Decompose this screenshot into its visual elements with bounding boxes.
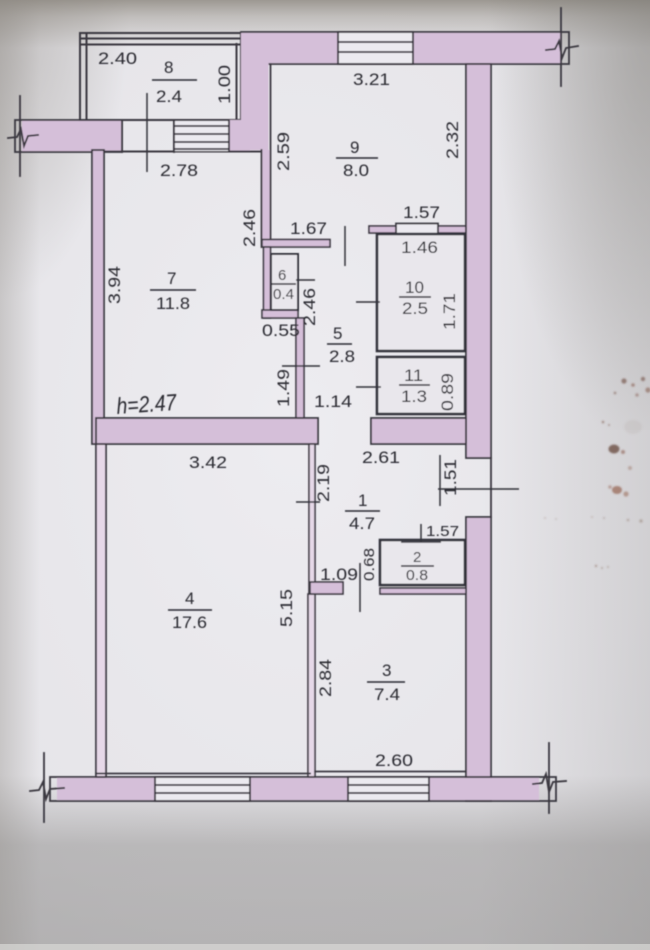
svg-text:9: 9 [350, 138, 359, 157]
svg-text:3.21: 3.21 [353, 70, 390, 89]
svg-text:1.51: 1.51 [441, 459, 460, 496]
svg-text:1.57: 1.57 [403, 203, 440, 222]
svg-text:2.46: 2.46 [240, 209, 259, 247]
svg-text:6: 6 [278, 267, 286, 284]
svg-text:2.5: 2.5 [402, 299, 428, 318]
svg-text:4: 4 [185, 589, 194, 608]
svg-text:2.84: 2.84 [316, 659, 335, 697]
svg-text:1.3: 1.3 [401, 387, 427, 406]
svg-text:0.89: 0.89 [438, 373, 457, 411]
svg-text:1.49: 1.49 [274, 369, 293, 407]
svg-text:1.14: 1.14 [314, 392, 352, 411]
svg-text:2: 2 [413, 549, 421, 566]
svg-text:2.61: 2.61 [362, 448, 400, 467]
svg-text:11: 11 [404, 366, 423, 385]
svg-text:2.46: 2.46 [300, 288, 319, 326]
svg-text:0.4: 0.4 [273, 286, 294, 303]
svg-text:8: 8 [164, 58, 173, 77]
svg-text:1.46: 1.46 [401, 238, 438, 257]
svg-text:17.6: 17.6 [172, 613, 207, 632]
svg-text:3.42: 3.42 [189, 453, 227, 472]
svg-text:2.59: 2.59 [274, 132, 293, 171]
svg-text:0.8: 0.8 [406, 567, 428, 584]
svg-text:11.8: 11.8 [156, 294, 190, 313]
svg-text:2.40: 2.40 [98, 49, 137, 68]
svg-text:10: 10 [405, 278, 424, 297]
svg-text:1: 1 [358, 491, 367, 510]
svg-text:2.4: 2.4 [156, 87, 182, 106]
svg-text:7: 7 [167, 269, 176, 288]
svg-text:2.32: 2.32 [443, 121, 462, 159]
svg-text:1.67: 1.67 [290, 219, 327, 238]
svg-text:8.0: 8.0 [343, 161, 369, 180]
svg-text:1.00: 1.00 [215, 65, 234, 104]
svg-text:2.60: 2.60 [375, 751, 413, 770]
svg-text:2.8: 2.8 [329, 347, 355, 366]
svg-text:3.94: 3.94 [105, 266, 124, 304]
svg-text:7.4: 7.4 [374, 685, 400, 704]
svg-text:2.19: 2.19 [314, 464, 333, 502]
svg-text:1.57: 1.57 [426, 523, 459, 540]
svg-text:0.55: 0.55 [262, 321, 300, 340]
svg-text:h=2.47: h=2.47 [116, 389, 179, 419]
svg-text:1.71: 1.71 [440, 293, 459, 330]
svg-text:5: 5 [333, 324, 342, 343]
svg-text:1.09: 1.09 [320, 565, 358, 584]
svg-text:5.15: 5.15 [277, 589, 296, 627]
svg-text:0.68: 0.68 [361, 548, 378, 581]
svg-text:3: 3 [382, 661, 391, 680]
svg-text:2.78: 2.78 [160, 161, 198, 180]
svg-text:4.7: 4.7 [349, 514, 375, 533]
